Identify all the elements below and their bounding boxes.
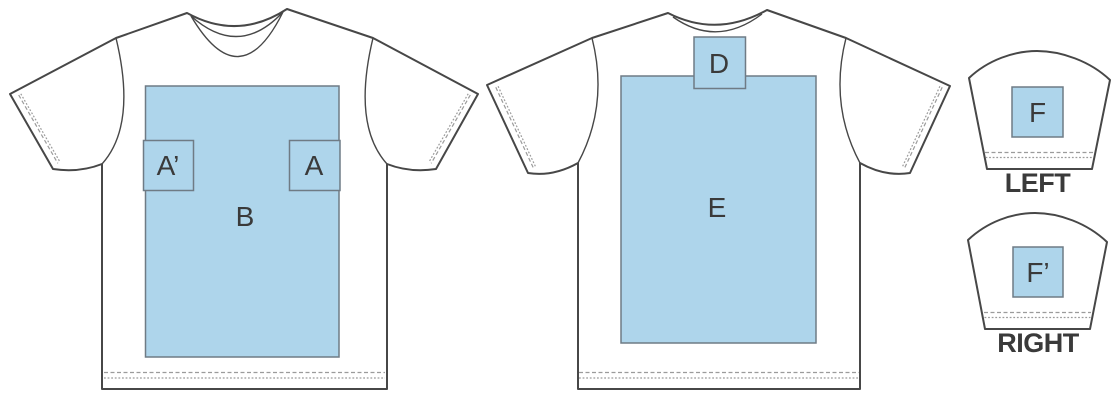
right-sleeve-view: F’ RIGHT [968, 213, 1107, 358]
right-sleeve-caption: RIGHT [997, 328, 1080, 358]
zone-label-a-prime: A’ [157, 150, 180, 181]
zone-label-a: A [305, 150, 324, 181]
zone-label-f: F [1029, 97, 1046, 128]
zone-label-e: E [708, 192, 727, 223]
tshirt-print-area-diagram: A’ A B D E [0, 0, 1120, 401]
zone-label-b: B [236, 201, 255, 232]
zone-label-d: D [709, 48, 729, 79]
zone-label-f-prime: F’ [1026, 257, 1049, 288]
left-sleeve-view: F LEFT [969, 51, 1110, 198]
left-sleeve-caption: LEFT [1005, 168, 1071, 198]
back-view: D E [487, 10, 950, 389]
diagram-svg: A’ A B D E [0, 0, 1120, 401]
front-view: A’ A B [10, 9, 478, 389]
